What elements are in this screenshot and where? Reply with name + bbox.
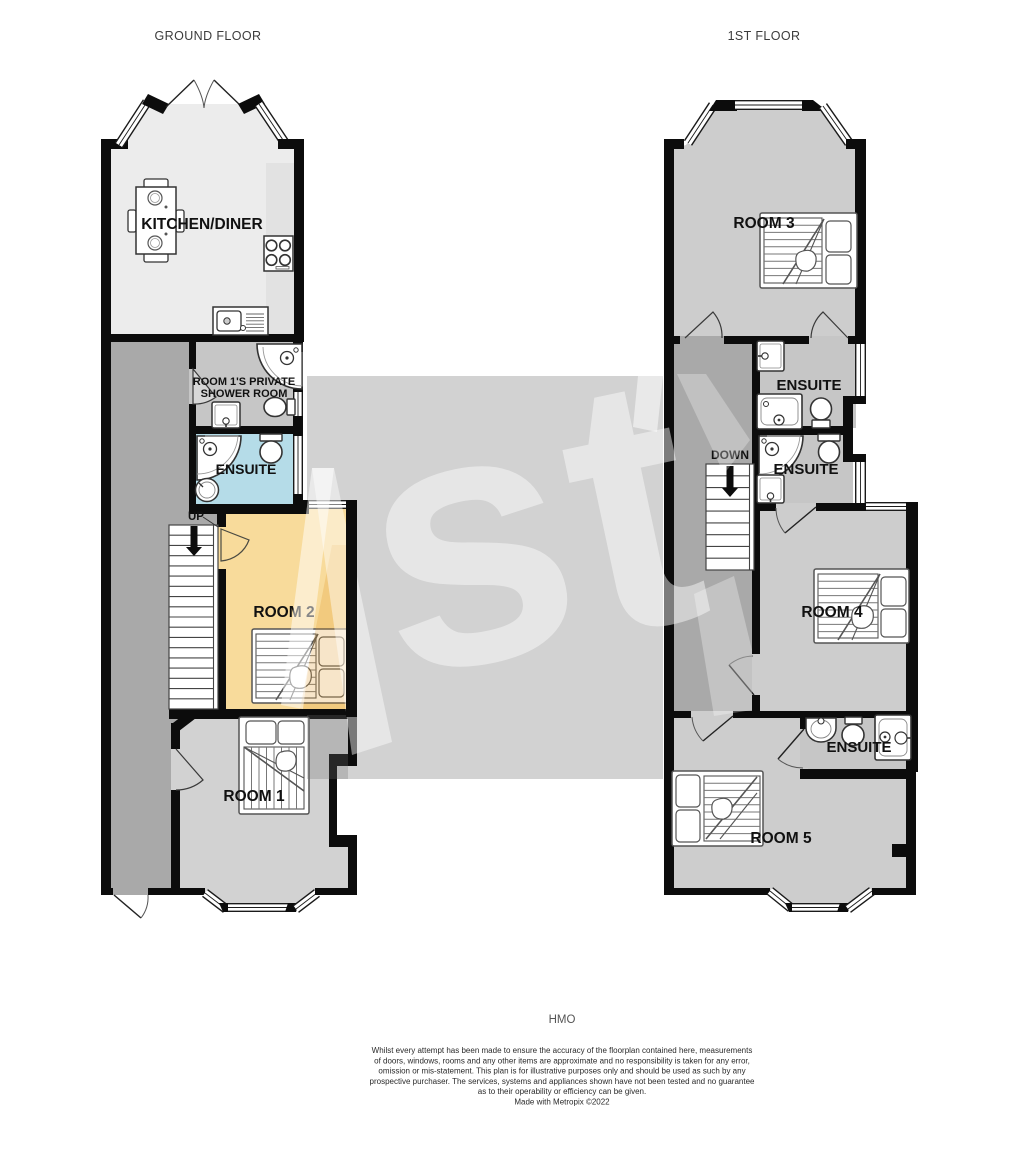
svg-text:1ST FLOOR: 1ST FLOOR	[728, 29, 801, 43]
svg-text:as to their operability or eff: as to their operability or efficiency ca…	[478, 1087, 646, 1096]
svg-text:HMO: HMO	[549, 1014, 576, 1026]
svg-text:ROOM 1: ROOM 1	[223, 788, 285, 805]
svg-text:ROOM 4: ROOM 4	[801, 604, 863, 621]
svg-text:ENSUITE: ENSUITE	[216, 461, 277, 477]
svg-text:ENSUITE: ENSUITE	[776, 377, 841, 394]
svg-text:GROUND FLOOR: GROUND FLOOR	[155, 29, 262, 43]
svg-text:ENSUITE: ENSUITE	[826, 739, 891, 756]
svg-text:Made with Metropix ©2022: Made with Metropix ©2022	[514, 1098, 610, 1107]
svg-text:KITCHEN/DINER: KITCHEN/DINER	[141, 216, 262, 233]
svg-text:ROOM 3: ROOM 3	[733, 215, 795, 232]
svg-text:prospective purchaser. The ser: prospective purchaser. The services, sys…	[370, 1077, 756, 1086]
svg-text:UP: UP	[188, 511, 204, 523]
svg-text:ENSUITE: ENSUITE	[773, 461, 838, 478]
svg-text:of doors, windows, rooms and a: of doors, windows, rooms and any other i…	[374, 1056, 750, 1065]
svg-text:ROOM 5: ROOM 5	[750, 830, 812, 847]
svg-text:ROOM 1'S PRIVATE: ROOM 1'S PRIVATE	[193, 376, 295, 388]
svg-text:omission or mis-statement. Thi: omission or mis-statement. This plan is …	[378, 1067, 745, 1076]
svg-text:Whilst every attempt has been: Whilst every attempt has been made to en…	[372, 1046, 753, 1055]
svg-text:SHOWER ROOM: SHOWER ROOM	[201, 388, 288, 400]
